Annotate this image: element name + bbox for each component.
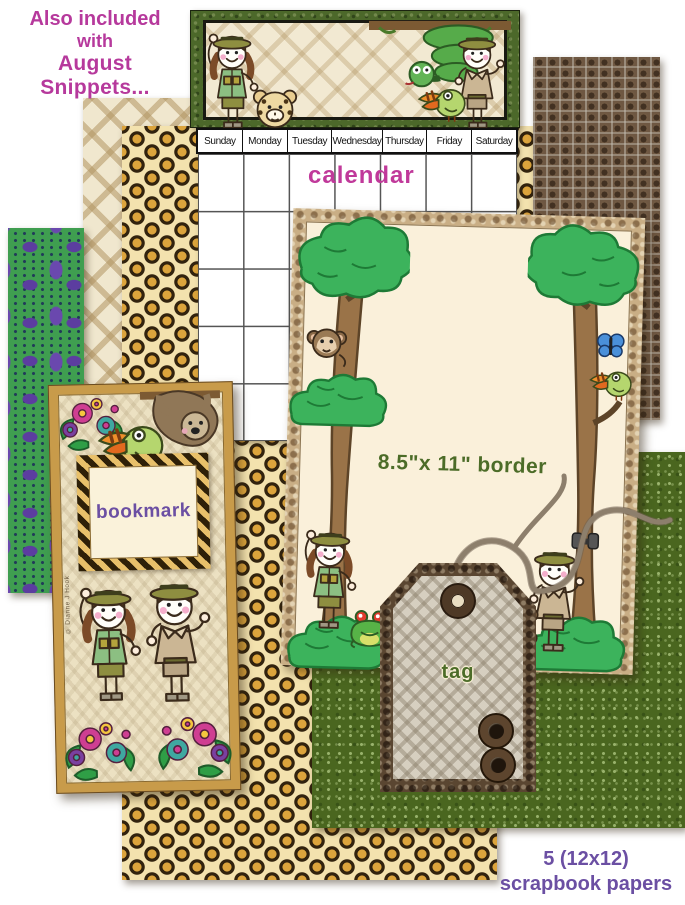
jungle-flowers-icon (152, 708, 238, 784)
bookmark-preview: bookmark © Dianne J Hook (48, 381, 242, 794)
day-header-tuesday: Tuesday (288, 130, 333, 152)
toucan-icon (415, 75, 469, 125)
jungle-flowers-icon (60, 714, 141, 786)
header-line-2: with (2, 31, 188, 52)
header-line-1: Also included (2, 8, 188, 31)
tag-preview: tag (380, 563, 536, 792)
bookmark-label-panel: bookmark (76, 453, 210, 572)
day-header-sunday: Sunday (198, 130, 243, 152)
header-line-3: August Snippets... (2, 52, 188, 100)
day-header-friday: Friday (427, 130, 472, 152)
promo-collage: Also included with August Snippets... Su… (0, 0, 685, 905)
tag-label: tag (380, 661, 536, 684)
day-header-wednesday: Wednesday (332, 130, 382, 152)
footer-line-2: scrapbook papers (491, 872, 681, 897)
bookmark-label-panel-inner: bookmark (88, 465, 198, 559)
calendar-day-header-row: Sunday Monday Tuesday Wednesday Thursday… (196, 128, 518, 154)
calendar-banner (190, 10, 520, 128)
toucan-icon (586, 358, 635, 403)
tag-grommet-icon (442, 585, 474, 617)
artist-credit: © Dianne J Hook (64, 576, 72, 635)
butterfly-icon (595, 333, 626, 360)
leopard-cub-icon (247, 85, 303, 131)
footer-caption: 5 (12x12) scrapbook papers (491, 847, 681, 897)
bookmark-label: bookmark (96, 500, 191, 524)
tag-brad-icon (480, 715, 512, 747)
day-header-saturday: Saturday (472, 130, 516, 152)
day-header-monday: Monday (243, 130, 288, 152)
tag-brad-icon (482, 749, 514, 781)
footer-line-1: 5 (12x12) (491, 847, 681, 872)
day-header-thursday: Thursday (383, 130, 428, 152)
calendar-label: calendar (308, 162, 415, 190)
safari-boy-icon (134, 561, 215, 721)
header-caption: Also included with August Snippets... (2, 8, 188, 100)
monkey-icon (303, 321, 350, 368)
